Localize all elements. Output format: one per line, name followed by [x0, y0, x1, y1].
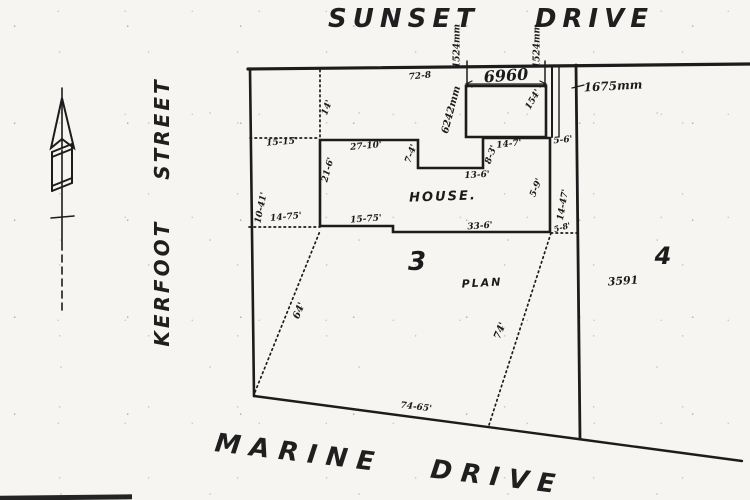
scan-smudge — [0, 494, 132, 500]
plan-number: 3591 — [607, 274, 638, 287]
lot-number-4: 4 — [655, 244, 672, 268]
street-name-sunset-drive: SUNSET DRIVE — [328, 6, 654, 32]
plan-label: PLAN — [461, 276, 502, 289]
dim-1675mm: 1675mm — [583, 78, 642, 93]
dim-13-6: 13-6' — [464, 171, 490, 181]
dotted-diagonal-64 — [255, 231, 320, 392]
street-name-kerfoot-street: KERFOOT STREET — [152, 62, 172, 362]
lot-number-3: 3 — [408, 249, 426, 275]
north-arrow — [51, 88, 74, 312]
street-word: DRIVE — [535, 6, 654, 32]
dim-1524mm-left: 1524mm — [454, 24, 463, 68]
survey-plan-page: SUNSET DRIVE KERFOOT STREET MARINE DRIVE… — [0, 0, 750, 500]
dim-1524mm-right: 1524mm — [534, 24, 543, 68]
street-word: STREET — [152, 77, 172, 179]
house-label: HOUSE. — [409, 189, 477, 204]
street-word: KERFOOT — [152, 220, 172, 347]
plan-linework — [0, 0, 750, 500]
boundary-west — [250, 69, 254, 396]
dim-6960: 6960 — [483, 66, 529, 85]
dim-5-6: 5-6' — [553, 136, 573, 147]
dim-tick-1675 — [572, 85, 584, 88]
dim-33-6: 33-6' — [467, 222, 493, 233]
north-arrow-cross-tick — [51, 216, 74, 218]
boundary-east — [576, 65, 580, 439]
